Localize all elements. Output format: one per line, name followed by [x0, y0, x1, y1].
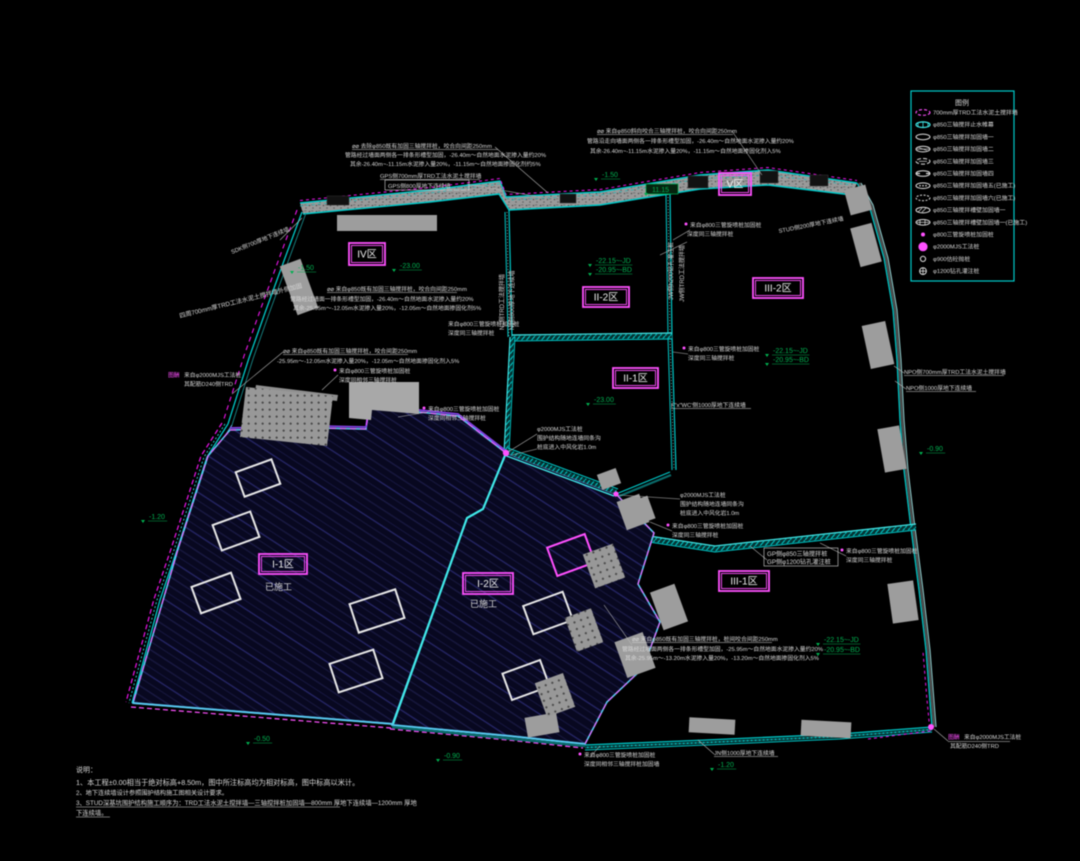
- svg-text:其余-25.95m～-13.20m水泥掺入量20%，-13.: 其余-25.95m～-13.20m水泥掺入量20%，-13.20m～自然地面掺固…: [625, 654, 819, 662]
- svg-text:-20.95~-BD: -20.95~-BD: [773, 357, 809, 364]
- svg-text:φ900估砼抛桩: φ900估砼抛桩: [933, 255, 970, 263]
- svg-text:-1.50: -1.50: [298, 265, 314, 272]
- svg-text:11.15: 11.15: [652, 187, 669, 194]
- svg-text:来自φ2000MJS工法桩: 来自φ2000MJS工法桩: [964, 733, 1021, 741]
- svg-text:其余-26.40m~-11.15m水泥掺入量20%，-11.: 其余-26.40m~-11.15m水泥掺入量20%，-11.15m～自然地面掺固…: [590, 147, 781, 155]
- svg-text:说明：: 说明：: [76, 765, 97, 774]
- svg-text:⌀⌀ 来自φ850既有加固三轴搅拌桩，咬合向间距250mm: ⌀⌀ 来自φ850既有加固三轴搅拌桩，咬合向间距250mm: [327, 285, 467, 293]
- svg-text:深度同三轴搅拌桩: 深度同三轴搅拌桩: [448, 329, 495, 337]
- svg-text:φ1200钻孔灌注桩: φ1200钻孔灌注桩: [933, 267, 979, 275]
- svg-text:JW侧h200钻孔灌注桩: JW侧h200钻孔灌注桩: [667, 242, 675, 300]
- svg-text:深度同三轴搅拌桩: 深度同三轴搅拌桩: [687, 230, 734, 238]
- svg-text:φ850三轴搅拌加固墙二: φ850三轴搅拌加固墙二: [933, 145, 994, 153]
- svg-text:围护结构随地连墙同条沟: 围护结构随地连墙同条沟: [537, 434, 601, 442]
- svg-text:II-2区: II-2区: [594, 292, 618, 304]
- svg-text:3、STUD深基坑围护结构施工顺序为：TRD工法水泥土搅拌墙: 3、STUD深基坑围护结构施工顺序为：TRD工法水泥土搅拌墙—三轴搅拌桩加固墙—…: [76, 798, 417, 807]
- svg-text:其余-26.40m~-11.15m水泥掺入量20%，-11.: 其余-26.40m~-11.15m水泥掺入量20%，-11.15m～自然地面掺固…: [350, 160, 541, 168]
- svg-text:管路经过墙面一排条形槽型加固，-26.40m～自然地面水泥掺: 管路经过墙面一排条形槽型加固，-26.40m～自然地面水泥掺入量约20%: [290, 295, 474, 303]
- svg-text:φ2000MJS工法桩: φ2000MJS工法桩: [680, 491, 726, 499]
- svg-text:已施工: 已施工: [470, 598, 497, 609]
- svg-text:IV区: IV区: [357, 249, 376, 261]
- svg-text:III-1区: III-1区: [730, 576, 757, 588]
- svg-text:GPS侧700mm厚TRD工法水泥土搅拌墙: GPS侧700mm厚TRD工法水泥土搅拌墙: [380, 172, 482, 180]
- svg-text:1、本工程±0.00相当于绝对标高+8.50m，图中所注标高: 1、本工程±0.00相当于绝对标高+8.50m，图中所注标高均为相对标高，图中标…: [76, 778, 359, 787]
- svg-text:已施工: 已施工: [265, 581, 292, 592]
- svg-text:来自φ800三管旋喷桩加固桩: 来自φ800三管旋喷桩加固桩: [428, 405, 500, 413]
- svg-text:NPO侧700mm厚TRD工法水泥土搅拌墙: NPO侧700mm厚TRD工法水泥土搅拌墙: [904, 368, 1006, 376]
- svg-text:⌀⌀ 来自φ850既有加固三轴搅拌桩，咬合间距250mm: ⌀⌀ 来自φ850既有加固三轴搅拌桩，咬合间距250mm: [283, 347, 417, 355]
- svg-text:-1.50: -1.50: [602, 172, 618, 179]
- svg-text:桩底进入中风化岩1.0m: 桩底进入中风化岩1.0m: [680, 509, 739, 517]
- svg-text:深度同三轴搅拌桩: 深度同三轴搅拌桩: [672, 531, 719, 539]
- svg-text:桩底进入中风化岩1.0m: 桩底进入中风化岩1.0m: [537, 443, 596, 451]
- svg-text:来自φ800三管旋喷桩加固桩: 来自φ800三管旋喷桩加固桩: [688, 345, 760, 353]
- svg-text:φ850三轴搅拌止水帷幕: φ850三轴搅拌止水帷幕: [933, 121, 994, 129]
- svg-text:管路经过墙面两侧各一排条形槽型加固，-25.95m～自然地面: 管路经过墙面两侧各一排条形槽型加固，-25.95m～自然地面水泥掺入量约20%: [622, 645, 823, 653]
- svg-text:深度同三轴搅拌桩: 深度同三轴搅拌桩: [688, 354, 735, 362]
- svg-text:φ850三轴搅拌加固墙一: φ850三轴搅拌加固墙一: [933, 133, 994, 141]
- svg-text:-23.00: -23.00: [400, 263, 420, 270]
- svg-text:管路经过墙面两侧各一排条形槽型加固，-26.40m～自然地面: 管路经过墙面两侧各一排条形槽型加固，-26.40m～自然地面水泥掺入量约20%: [345, 151, 546, 159]
- svg-text:φ850三轴搅拌槽壁加固墙一: φ850三轴搅拌槽壁加固墙一: [933, 206, 1006, 214]
- svg-text:图酬: 图酬: [948, 733, 960, 741]
- svg-text:φ2000MJS工法桩: φ2000MJS工法桩: [537, 425, 583, 433]
- svg-text:图例: 图例: [955, 98, 969, 107]
- svg-text:N1侧TRD工法搅拌墙: N1侧TRD工法搅拌墙: [498, 274, 506, 330]
- svg-text:深度同三轴搅拌桩: 深度同三轴搅拌桩: [846, 556, 893, 564]
- svg-text:φ850三轴搅拌加固墙六(已施工): φ850三轴搅拌加固墙六(已施工): [933, 194, 1015, 202]
- svg-text:其配筋D240侧TRD: 其配筋D240侧TRD: [184, 380, 233, 388]
- svg-text:GPS侧800厚地下连续墙: GPS侧800厚地下连续墙: [388, 182, 451, 190]
- svg-text:深度同相邻三轴搅拌桩: 深度同相邻三轴搅拌桩: [428, 414, 486, 422]
- svg-text:-0.50: -0.50: [254, 736, 270, 743]
- svg-text:管路沿走向墙面两侧各一排条形槽型加固，-26.40m～自然地: 管路沿走向墙面两侧各一排条形槽型加固，-26.40m～自然地面水泥掺入量约20%: [587, 137, 794, 145]
- svg-text:II-1区: II-1区: [623, 373, 647, 385]
- svg-text:-20.95~-BD: -20.95~-BD: [596, 267, 632, 274]
- svg-text:I-2区: I-2区: [477, 578, 499, 590]
- svg-text:-0.90: -0.90: [927, 446, 943, 453]
- svg-text:N1侧800厚地下连续墙: N1侧800厚地下连续墙: [508, 270, 516, 330]
- svg-text:φ850三轴搅拌槽壁加固墙一(已施工): φ850三轴搅拌槽壁加固墙一(已施工): [933, 218, 1027, 226]
- svg-text:图酬: 图酬: [168, 371, 180, 379]
- svg-text:⌀⌀ 去除φ850既有加固三轴搅拌桩，咬合向间距250mm: ⌀⌀ 去除φ850既有加固三轴搅拌桩，咬合向间距250mm: [352, 142, 492, 150]
- svg-text:GP侧φ1200钻孔灌注桩: GP侧φ1200钻孔灌注桩: [767, 558, 831, 566]
- svg-text:-25.95m～-12.05m水泥掺入量20%，-12.05: -25.95m～-12.05m水泥掺入量20%，-12.05m～自然地面掺固化剂…: [277, 357, 459, 365]
- svg-text:其余-25.95m～-12.05m水泥掺入量20%，-12.: 其余-25.95m～-12.05m水泥掺入量20%，-12.05m～自然地面掺固…: [293, 304, 481, 312]
- svg-text:来自φ800三管旋喷桩加固桩: 来自φ800三管旋喷桩加固桩: [690, 221, 762, 229]
- svg-text:来自φ800三管旋喷桩加固桩: 来自φ800三管旋喷桩加固桩: [448, 320, 520, 328]
- svg-text:来自φ2000MJS工法桩: 来自φ2000MJS工法桩: [184, 371, 241, 379]
- svg-text:深度同相邻三轴搅拌桩加固墙: 深度同相邻三轴搅拌桩加固墙: [584, 760, 660, 768]
- svg-text:GP侧φ850三轴搅拌桩: GP侧φ850三轴搅拌桩: [767, 550, 827, 558]
- svg-text:φ2000MJS工法桩: φ2000MJS工法桩: [933, 243, 979, 251]
- svg-text:-23.00: -23.00: [594, 397, 614, 404]
- svg-text:⌀⌀ 来自φ850斜向咬合三轴搅拌桩，咬合向间距250mm: ⌀⌀ 来自φ850斜向咬合三轴搅拌桩，咬合向间距250mm: [597, 127, 737, 135]
- svg-text:深度同相邻三轴搅拌桩: 深度同相邻三轴搅拌桩: [339, 376, 397, 384]
- svg-text:V区: V区: [727, 179, 744, 191]
- svg-text:φ850三轴搅拌加固墙四: φ850三轴搅拌加固墙四: [933, 170, 994, 178]
- svg-text:φ850三轴搅拌加固墙三: φ850三轴搅拌加固墙三: [933, 157, 994, 165]
- svg-text:III-2区: III-2区: [764, 283, 791, 295]
- svg-text:JW侧TRD工法搅拌墙: JW侧TRD工法搅拌墙: [678, 245, 686, 302]
- svg-text:φ850三轴搅拌加固墙五(已施工): φ850三轴搅拌加固墙五(已施工): [933, 182, 1015, 190]
- svg-text:-1.20: -1.20: [718, 762, 734, 769]
- svg-text:NPO侧1000厚地下连续墙: NPO侧1000厚地下连续墙: [906, 384, 972, 392]
- svg-text:来自φ800三管旋喷桩加固桩: 来自φ800三管旋喷桩加固桩: [672, 522, 744, 530]
- svg-text:来自φ800三管旋喷桩加固桩: 来自φ800三管旋喷桩加固桩: [339, 367, 411, 375]
- svg-text:I-1区: I-1区: [272, 559, 294, 571]
- svg-text:-22.15~-JD: -22.15~-JD: [596, 258, 631, 265]
- svg-text:-1.20: -1.20: [149, 514, 165, 521]
- svg-text:围护结构随地连墙同条沟: 围护结构随地连墙同条沟: [680, 500, 744, 508]
- svg-text:-0.90: -0.90: [444, 753, 460, 760]
- svg-text:来自φ800三管旋喷桩加固桩: 来自φ800三管旋喷桩加固桩: [584, 751, 656, 759]
- svg-text:下连续墙。: 下连续墙。: [76, 808, 107, 817]
- svg-text:-20.95~-BD: -20.95~-BD: [824, 647, 860, 654]
- svg-text:φ800三管旋喷桩加固桩: φ800三管旋喷桩加固桩: [933, 231, 994, 239]
- svg-text:-22.15~-JD: -22.15~-JD: [824, 637, 859, 644]
- svg-text:F"x"WC'侧1000厚地下连续墙: F"x"WC'侧1000厚地下连续墙: [671, 401, 746, 409]
- svg-text:2、地下连续墙设计参照围护结构施工图相关设计要求。: 2、地下连续墙设计参照围护结构施工图相关设计要求。: [76, 789, 228, 797]
- svg-text:来自φ800三管旋喷桩加固桩: 来自φ800三管旋喷桩加固桩: [846, 547, 918, 555]
- svg-text:-22.15~-JD: -22.15~-JD: [773, 348, 808, 355]
- svg-text:JN侧1000厚地下连续墙: JN侧1000厚地下连续墙: [714, 749, 775, 757]
- svg-text:⌀⌀ 来自φ850既有加固三轴搅拌桩，桩间咬合间距250mm: ⌀⌀ 来自φ850既有加固三轴搅拌桩，桩间咬合间距250mm: [632, 635, 778, 643]
- svg-text:其配筋D240侧TRD: 其配筋D240侧TRD: [950, 742, 999, 750]
- svg-text:700mm厚TRD工法水泥土搅拌墙: 700mm厚TRD工法水泥土搅拌墙: [933, 109, 1018, 117]
